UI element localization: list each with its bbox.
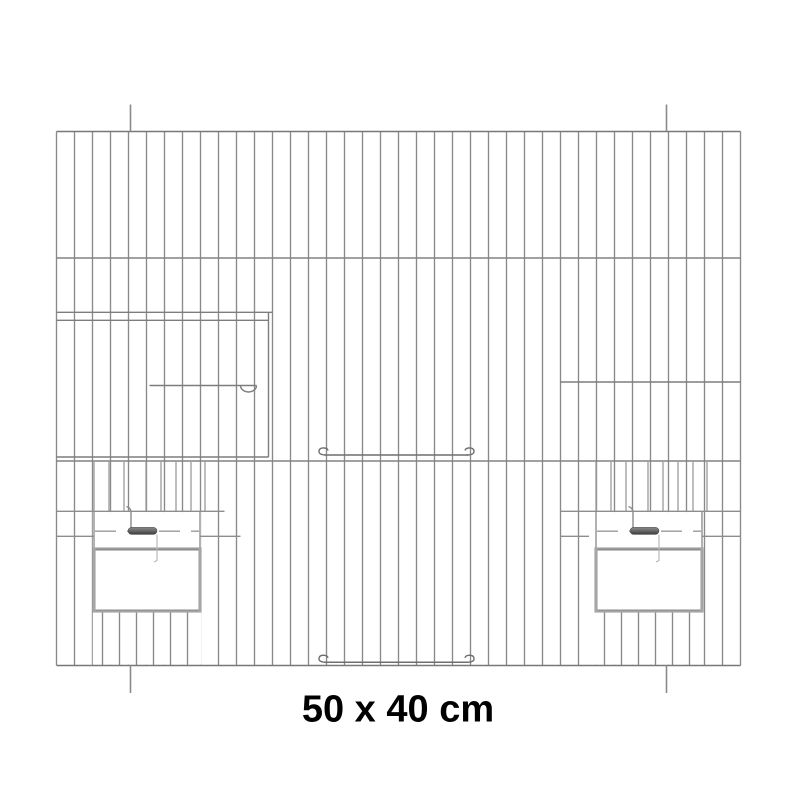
svg-text:50 x 40 cm: 50 x 40 cm bbox=[302, 689, 494, 731]
